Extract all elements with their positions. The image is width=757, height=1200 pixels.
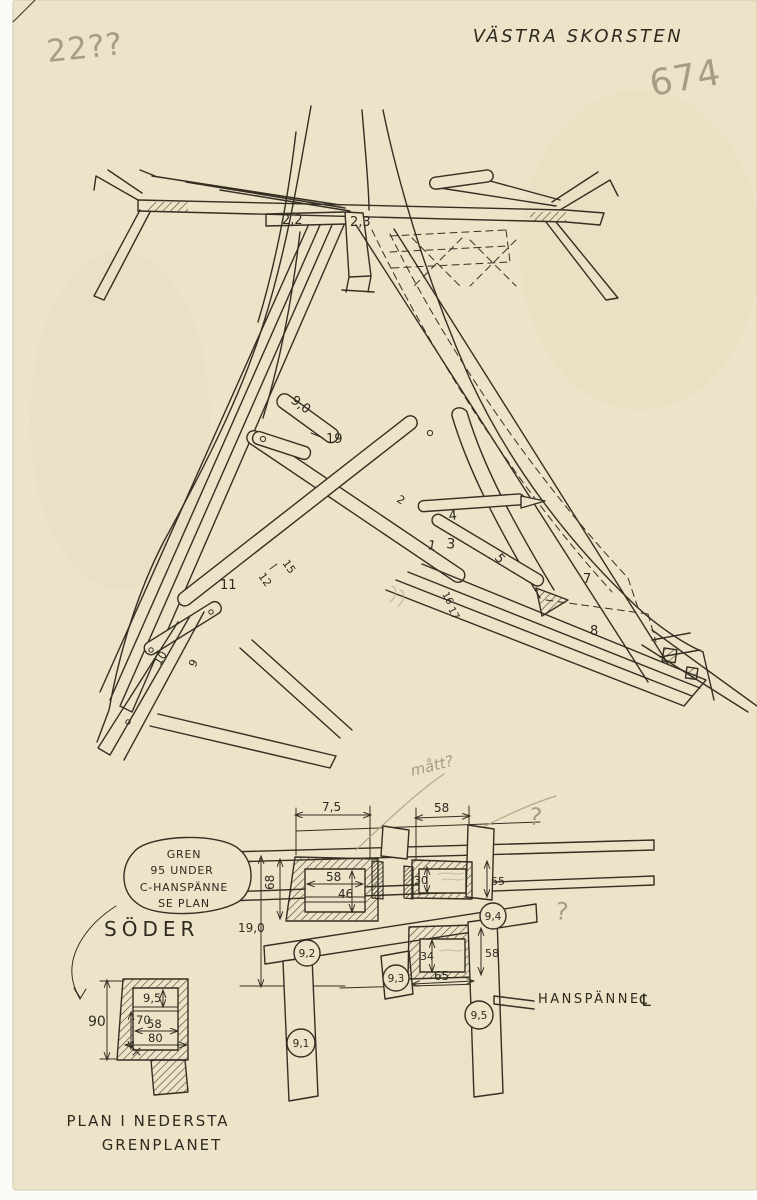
label-19: 19 (326, 432, 343, 447)
dim-58-top: 58 (434, 801, 449, 815)
scanned-drawing-page: VÄSTRA SKORSTEN 22?? 674 (0, 0, 757, 1200)
dim-68: 68 (263, 875, 277, 890)
dim-46: 46 (338, 887, 353, 901)
sp-dim-80: 80 (148, 1031, 163, 1045)
dim-65: 65 (434, 969, 449, 983)
label-7: 7 (583, 572, 591, 587)
label-4: 4 (448, 508, 458, 524)
caption-line-1: PLAN I NEDERSTA (66, 1112, 229, 1130)
sp-dim-90: 90 (88, 1014, 106, 1030)
label-dim-23: 2,3 (350, 215, 371, 230)
sp-dim-95: 9,5 (143, 991, 161, 1005)
label-11: 11 (220, 578, 237, 593)
soder-label: SÖDER (104, 917, 199, 941)
dim-58-inner: 58 (326, 870, 341, 884)
dim-34: 34 (420, 950, 434, 963)
ref-95: 9,5 (471, 1010, 488, 1022)
ref-94: 9,4 (485, 911, 502, 923)
ref-93: 9,3 (388, 973, 405, 985)
bubble-line-2: 95 UNDER (150, 864, 213, 877)
small-plan-stem (151, 1060, 188, 1095)
left-block-sliver (372, 861, 383, 899)
dim-55: 55 (491, 875, 505, 888)
dim-58-right: 58 (485, 947, 499, 960)
bubble-line-1: GREN (167, 848, 202, 861)
label-8: 8 (590, 624, 598, 639)
dim-190: 19,0 (238, 921, 265, 935)
ref-91: 9,1 (293, 1038, 310, 1050)
dim-30: 30 (414, 874, 428, 887)
pencil-question-2: ? (554, 897, 569, 926)
dim-75: 7,5 (322, 800, 341, 814)
ref-92: 9,2 (299, 948, 316, 960)
hanspanne-label: HANSPÄNNE (538, 991, 641, 1007)
label-dim-22: 2,2 (282, 213, 303, 228)
drawing-canvas: VÄSTRA SKORSTEN 22?? 674 (0, 0, 757, 1200)
page-title: VÄSTRA SKORSTEN (473, 26, 684, 47)
sp-dim-58: 58 (147, 1017, 162, 1031)
caption-line-2: GRENPLANET (102, 1136, 223, 1154)
centerline-symbol: ℄ (639, 991, 651, 1011)
bubble-line-3: C-HANSPÄNNE (140, 881, 228, 894)
center-plan-post (381, 826, 409, 859)
bubble-line-4: SE PLAN (158, 897, 210, 910)
label-3: 3 (446, 536, 456, 553)
